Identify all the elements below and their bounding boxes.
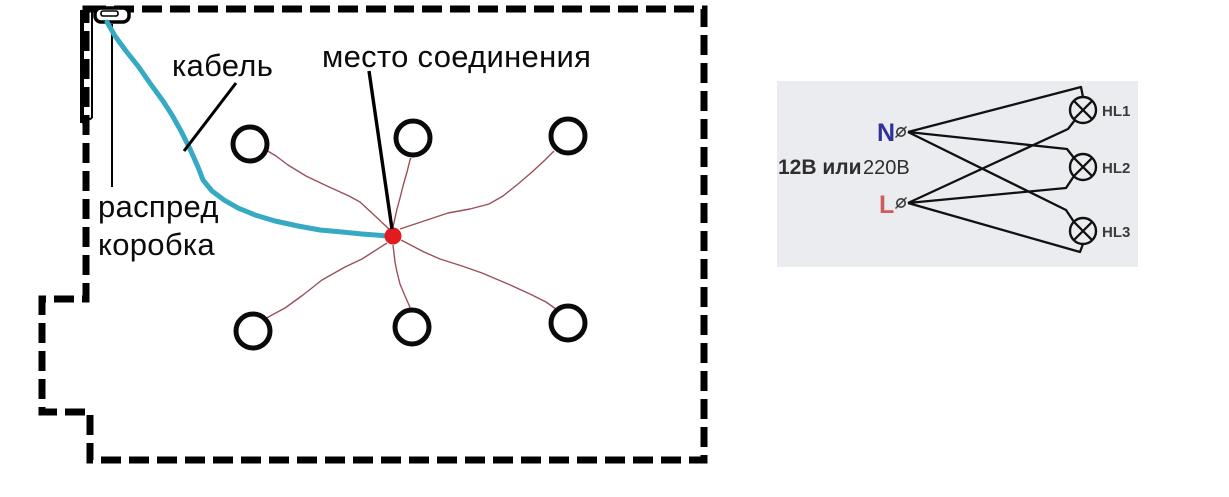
lamp-label-hl1: HL1 bbox=[1102, 103, 1130, 120]
lamp-label-hl2: HL2 bbox=[1102, 160, 1130, 177]
cable-label: кабель bbox=[172, 48, 273, 83]
voltage-label-regular: 220В bbox=[863, 157, 910, 179]
diagram-scene: кабель место соединения распред коробка … bbox=[0, 0, 1229, 497]
lamp-icon-hl2 bbox=[1070, 154, 1096, 180]
lamp-icon-hl1 bbox=[1070, 97, 1096, 123]
spotlights bbox=[233, 119, 585, 348]
neutral-terminal-label: N bbox=[877, 119, 895, 147]
box-label-line1: распред bbox=[98, 189, 219, 224]
box-label-line2: коробка bbox=[98, 227, 215, 262]
wire-to-spotlight-2 bbox=[393, 158, 411, 227]
spotlight-icon-2 bbox=[396, 121, 430, 155]
wire-to-spotlight-5 bbox=[393, 245, 411, 310]
lamp-label-hl3: HL3 bbox=[1102, 224, 1130, 241]
spotlight-icon-5 bbox=[395, 310, 429, 344]
lamp-icon-hl3 bbox=[1070, 218, 1096, 244]
fixture-wires bbox=[265, 150, 556, 319]
wire-to-spotlight-6 bbox=[401, 240, 556, 309]
voltage-label-bold: 12В или bbox=[778, 156, 862, 179]
distribution-box-icon bbox=[95, 8, 129, 22]
spotlight-icon-1 bbox=[233, 127, 267, 161]
junction-label: место соединения bbox=[322, 39, 591, 74]
floorplan: кабель место соединения распред коробка bbox=[42, 8, 704, 460]
wire-to-spotlight-1 bbox=[266, 150, 390, 230]
schematic: 12В или 220В N L bbox=[777, 81, 1138, 267]
wire-to-spotlight-4 bbox=[265, 243, 387, 319]
wiring-diagram-canvas: кабель место соединения распред коробка … bbox=[0, 0, 1229, 497]
wire-to-spotlight-3 bbox=[400, 151, 554, 229]
line-terminal-label: L bbox=[879, 191, 894, 219]
spotlight-icon-4 bbox=[236, 314, 270, 348]
junction-leader-line bbox=[369, 71, 392, 229]
cable-leader-line bbox=[184, 83, 236, 151]
lamp-icons bbox=[1070, 97, 1096, 244]
spotlight-icon-3 bbox=[551, 119, 585, 153]
spotlight-icon-6 bbox=[551, 306, 585, 340]
junction-point bbox=[385, 228, 402, 245]
